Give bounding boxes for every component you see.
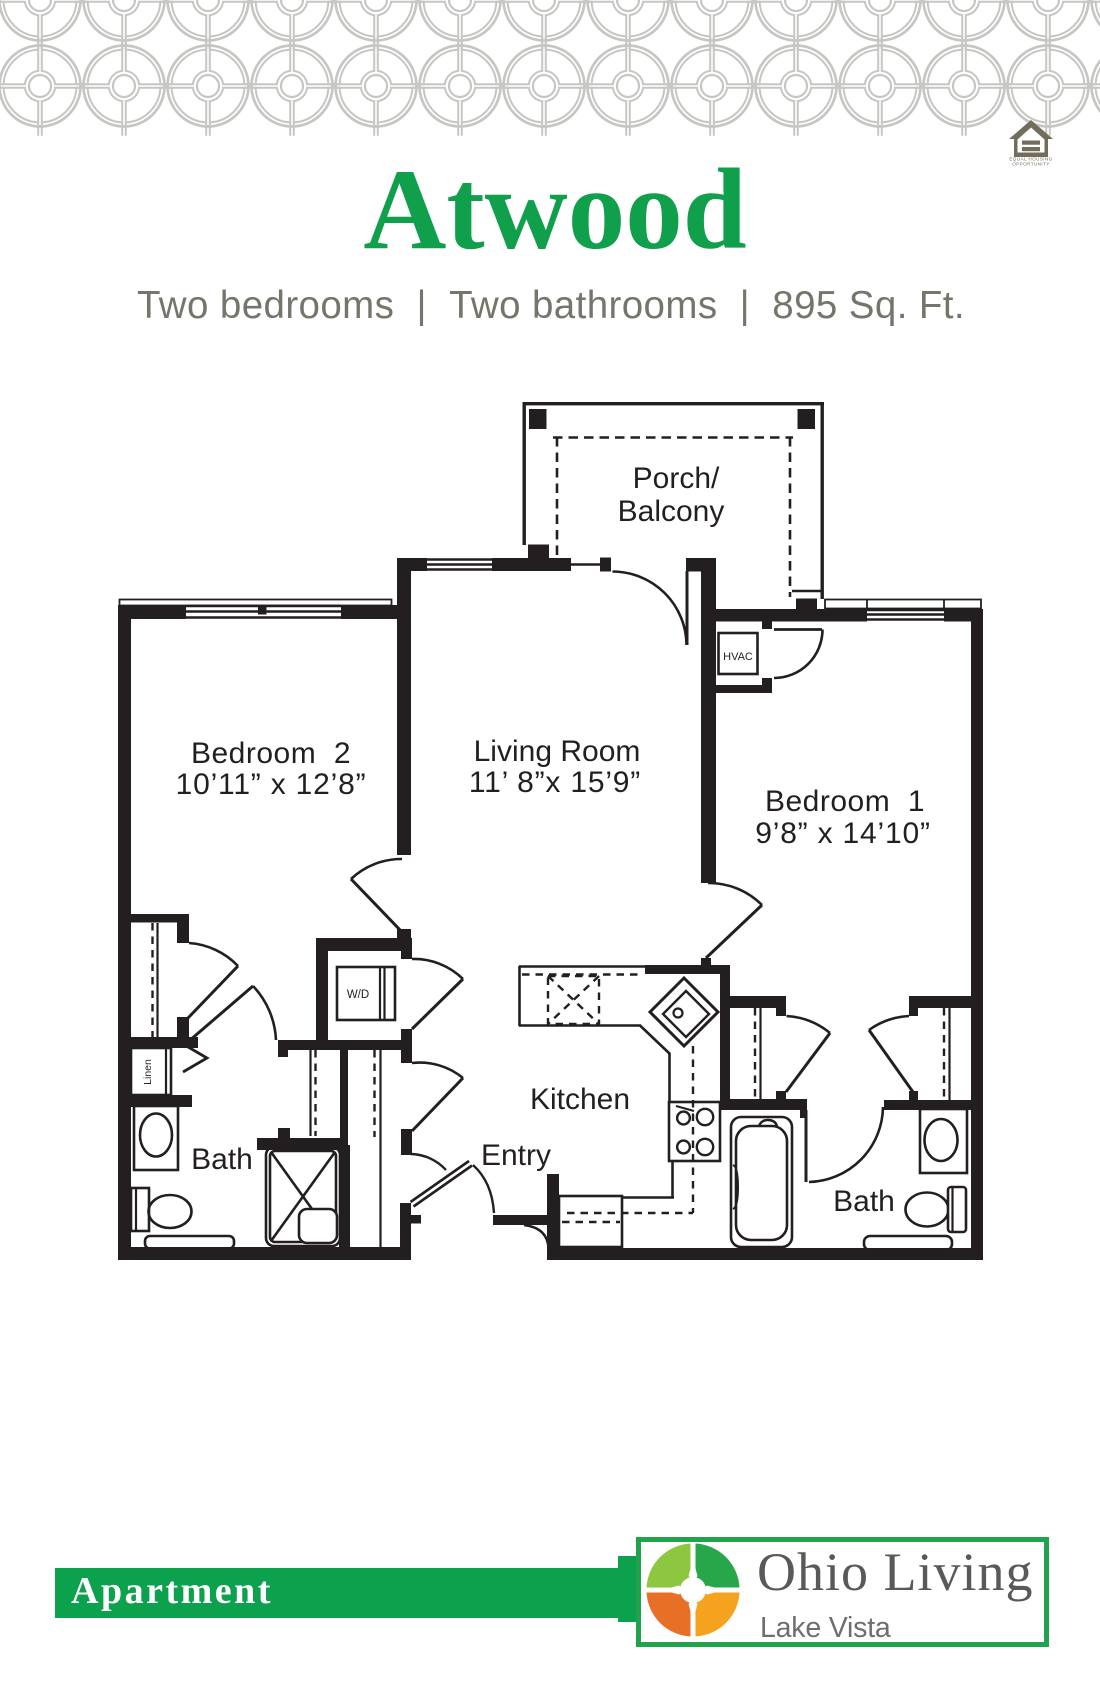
svg-text:Two bedrooms | Two bathrooms: Two bedrooms | Two bathrooms | 895 Sq. F… — [137, 284, 965, 327]
svg-text:HVAC: HVAC — [723, 651, 753, 663]
svg-text:9’8” x 14’10”: 9’8” x 14’10” — [755, 817, 931, 850]
svg-text:W/D: W/D — [347, 989, 369, 1001]
svg-text:Entry: Entry — [481, 1139, 551, 1172]
svg-text:Bedroom 1: Bedroom 1 — [765, 785, 925, 818]
svg-text:Bedroom 2: Bedroom 2 — [191, 737, 351, 770]
svg-text:Porch/: Porch/ — [633, 462, 720, 495]
svg-text:Lake Vista: Lake Vista — [760, 1612, 891, 1644]
svg-text:Ohio Living: Ohio Living — [757, 1542, 1034, 1602]
svg-text:10’11” x 12’8”: 10’11” x 12’8” — [176, 768, 367, 801]
svg-text:11’ 8”x 15’9”: 11’ 8”x 15’9” — [469, 766, 641, 799]
svg-text:OPPORTUNITY: OPPORTUNITY — [1012, 162, 1050, 167]
svg-text:Balcony: Balcony — [618, 495, 725, 528]
svg-text:Atwood: Atwood — [363, 146, 746, 273]
svg-text:Bath: Bath — [833, 1185, 895, 1218]
svg-text:Bath: Bath — [191, 1143, 253, 1176]
svg-text:Living Room: Living Room — [474, 735, 641, 768]
svg-text:Kitchen: Kitchen — [530, 1083, 630, 1116]
svg-text:Apartment: Apartment — [71, 1570, 273, 1612]
svg-text:Linen: Linen — [142, 1059, 154, 1085]
